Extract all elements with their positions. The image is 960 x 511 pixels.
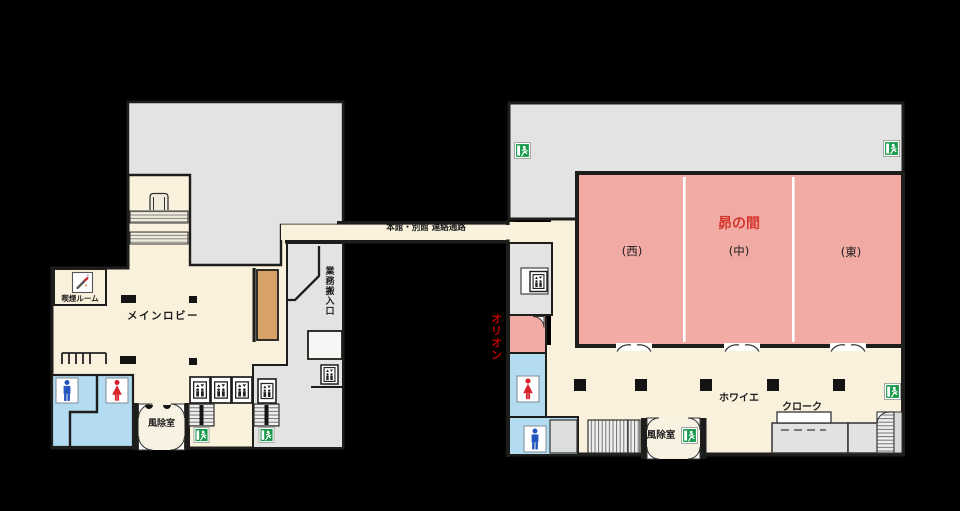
annex-windbreak-label: 風除室 xyxy=(641,431,681,441)
main-toilets xyxy=(52,375,133,447)
annex-hallway xyxy=(551,220,578,347)
cloak-counter xyxy=(777,412,831,423)
hotel-floor-map: 喫煙ルーム メインロビー フロント レセプション 業務搬入口 本館・別館 連絡通… xyxy=(0,0,960,511)
annex-female-toilet xyxy=(509,353,546,417)
floor-plan-graphics xyxy=(0,0,960,511)
annex-stairs-east xyxy=(877,412,902,453)
main-lobby-label: メインロビー xyxy=(124,311,202,322)
main-windbreak-label: 風除室 xyxy=(137,420,186,429)
annex-building xyxy=(505,103,905,459)
annex-stairs-west xyxy=(588,420,640,453)
main-elevators xyxy=(190,377,276,403)
foyer-label: ホワイエ xyxy=(703,394,775,405)
orion-room-label: オリオン xyxy=(490,313,502,381)
reception-desk xyxy=(253,268,279,342)
exit-sign-icon xyxy=(514,142,530,158)
annex-male-toilet xyxy=(509,417,578,455)
cloakroom-label: クローク xyxy=(766,403,838,414)
service-entrance-label: 業務搬入口 xyxy=(323,266,332,328)
subaru-hall-label: 昴の間 xyxy=(689,217,789,232)
smoking-room-label: 喫煙ルーム xyxy=(53,295,107,303)
hall-section-center-label: (中) xyxy=(710,245,768,257)
corridor-label: 本館・別館 連絡通路 xyxy=(348,224,504,233)
exit-sign-icon xyxy=(883,140,899,156)
hall-section-west-label: (西) xyxy=(603,245,661,257)
subaru-hall xyxy=(577,173,903,346)
hall-section-east-label: (東) xyxy=(822,246,880,258)
annex-back-room xyxy=(509,243,552,315)
exit-sign-icon xyxy=(884,383,900,399)
orion-room xyxy=(509,315,546,353)
